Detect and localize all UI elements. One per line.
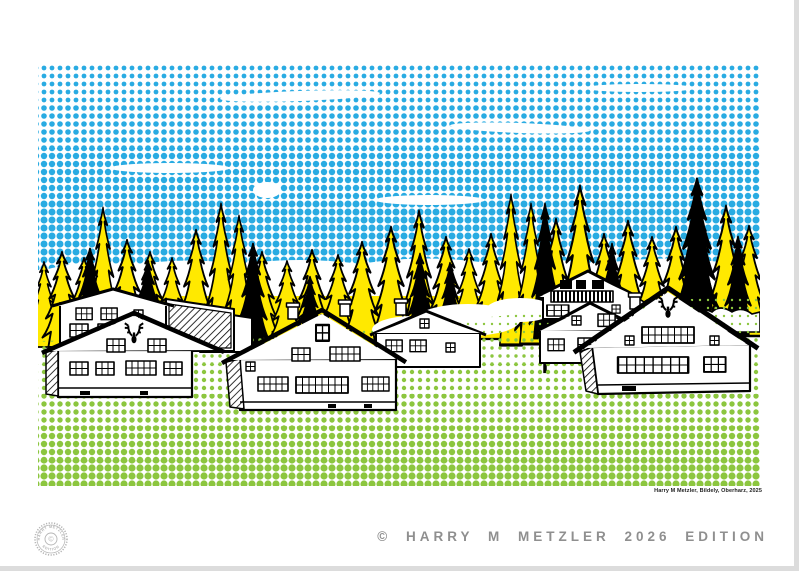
chimney xyxy=(395,299,408,315)
stamp-copyright-icon: © xyxy=(48,535,54,543)
chimney xyxy=(339,300,352,316)
window-right-edge xyxy=(794,0,799,571)
artwork-canvas xyxy=(38,40,760,508)
artist-signature: Harry M Metzler, Bildely, Oberharz, 2025 xyxy=(654,488,762,494)
svg-text:EDITION: EDITION xyxy=(42,544,61,551)
edition-stamp: © HARRY METZLER EDITION xyxy=(32,520,70,558)
balcony-railing xyxy=(551,291,613,302)
balcony-windows xyxy=(560,280,604,289)
chimney xyxy=(287,303,300,319)
edition-caption: © HARRY M METZLER 2026 EDITION xyxy=(377,529,768,544)
window-bottom-edge xyxy=(0,566,799,571)
poster: Harry M Metzler, Bildely, Oberharz, 2025… xyxy=(0,0,799,571)
stamp-bottom-text: EDITION xyxy=(42,544,61,551)
